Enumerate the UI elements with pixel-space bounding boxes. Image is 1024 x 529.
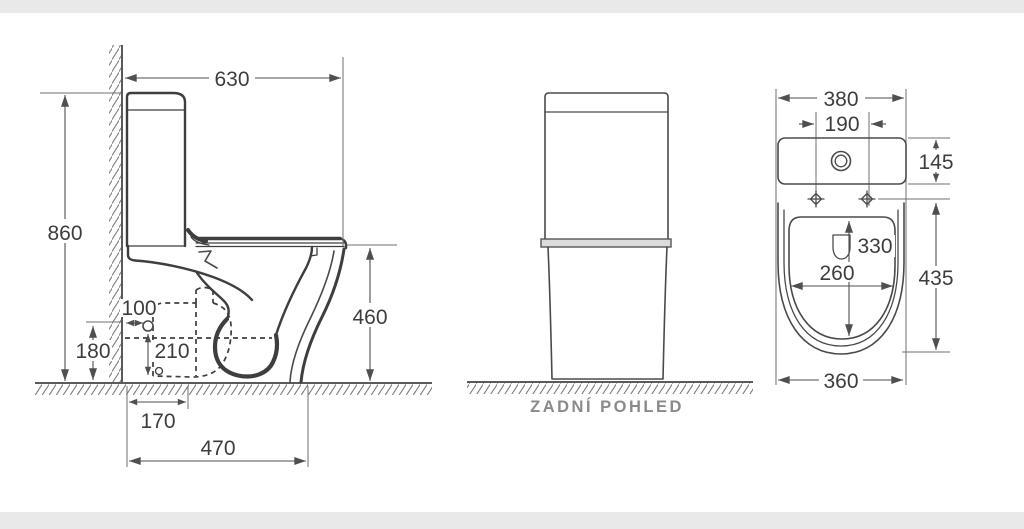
seat-hinge	[199, 251, 217, 268]
bowl-sump	[215, 319, 277, 376]
dim-label-630: 630	[214, 68, 249, 91]
dim-overall-height: 860	[40, 93, 121, 381]
dim-bowl-length: 435	[902, 203, 958, 352]
dim-overall-depth: 630	[125, 57, 343, 246]
rear-base	[548, 247, 667, 379]
outlet-hole	[156, 368, 163, 375]
rear-toilet-outline	[541, 93, 671, 379]
bowl-front-inner-wall	[276, 247, 312, 335]
side-view: 630 860 460 100 180 210	[35, 45, 432, 467]
rear-floor-hatch	[467, 383, 753, 394]
dim-label-460: 460	[352, 306, 387, 329]
rear-floor	[467, 382, 753, 394]
floor-hatch	[35, 384, 432, 395]
dim-bolt-spacing: 190	[799, 112, 886, 206]
mounting-hole-right	[859, 191, 875, 207]
rear-view-caption: ZADNÍ POHLED	[530, 397, 684, 416]
rear-seat-band	[541, 239, 671, 247]
inlet-hole	[143, 321, 153, 331]
dim-label-435: 435	[918, 267, 953, 290]
top-view: 380 190 145	[776, 87, 958, 393]
dim-inlet-drop: 210	[148, 334, 191, 375]
dim-overall-width: 380	[778, 87, 904, 111]
floor	[35, 383, 432, 395]
bottom-edge-band	[0, 512, 1024, 529]
wall-hatch	[109, 45, 122, 383]
dim-outlet-from-wall: 170	[127, 386, 188, 467]
dim-label-145: 145	[918, 151, 953, 174]
top-cistern-outline	[778, 138, 906, 184]
dim-label-180: 180	[75, 340, 110, 363]
mounting-hole-left	[808, 191, 824, 207]
dim-label-170: 170	[140, 410, 175, 433]
bowl-back-shelf	[128, 246, 252, 300]
bowl-inner-back-curve	[197, 273, 229, 319]
mounting-holes	[808, 191, 950, 207]
seat-and-lid	[188, 230, 346, 268]
cistern-outline	[127, 93, 185, 246]
flush-button-inner	[835, 155, 847, 167]
bowl-front-outer-inner-line	[290, 251, 334, 382]
dim-label-260: 260	[819, 262, 854, 285]
dim-label-860: 860	[47, 222, 82, 245]
toilet-side-profile	[125, 93, 346, 382]
dim-label-210: 210	[154, 340, 189, 363]
dim-label-360: 360	[823, 370, 858, 393]
lid-back-curl	[188, 230, 206, 241]
dim-label-330: 330	[857, 235, 892, 258]
rear-view: ZADNÍ POHLED	[467, 93, 753, 416]
dim-inlet-from-wall: 100	[120, 297, 158, 323]
dim-label-380: 380	[823, 88, 858, 111]
dim-tank-depth: 145	[908, 138, 958, 184]
bowl-front-outer-wall	[301, 249, 344, 382]
rear-cistern	[545, 93, 668, 240]
dim-label-190: 190	[824, 113, 859, 136]
flush-button-outer	[832, 152, 851, 171]
dim-label-100: 100	[121, 297, 156, 320]
dim-rim-height: 460	[347, 245, 397, 381]
dim-opening-width: 260	[791, 262, 893, 286]
dim-label-470: 470	[200, 437, 235, 460]
top-edge-band	[0, 0, 1024, 13]
flush-inlet-hole	[833, 235, 850, 259]
dim-bowl-width: 360	[778, 368, 903, 393]
drawing-canvas: 630 860 460 100 180 210	[0, 0, 1024, 529]
top-cistern	[778, 138, 906, 184]
technical-drawing: 630 860 460 100 180 210	[0, 0, 1024, 529]
wall	[109, 45, 122, 383]
